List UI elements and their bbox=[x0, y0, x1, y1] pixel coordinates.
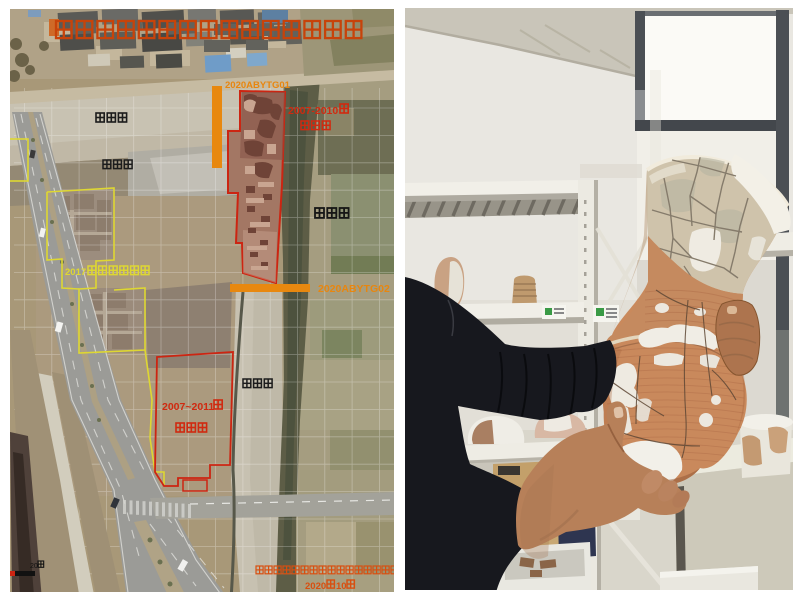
svg-text:2020: 2020 bbox=[305, 581, 326, 592]
svg-text:2007~2011: 2007~2011 bbox=[162, 401, 214, 413]
svg-text:2007-2010: 2007-2010 bbox=[288, 105, 338, 117]
svg-text:2020ABYTG02: 2020ABYTG02 bbox=[318, 283, 390, 295]
svg-text:10: 10 bbox=[336, 581, 347, 592]
svg-text:2017: 2017 bbox=[65, 267, 86, 278]
svg-text:20: 20 bbox=[30, 563, 38, 570]
svg-text:2020ABYTG01: 2020ABYTG01 bbox=[225, 80, 291, 91]
